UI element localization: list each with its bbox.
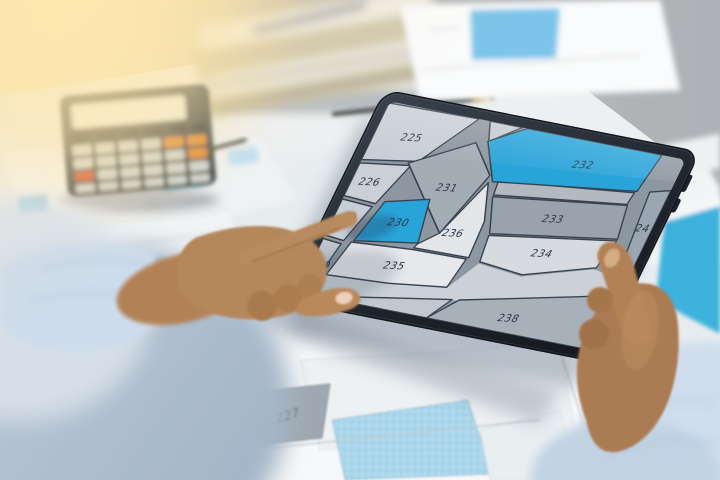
desk-paper-behind-tablet — [400, 0, 680, 100]
photo-scene: 227 — [0, 0, 720, 480]
left-knuckle — [247, 291, 277, 321]
